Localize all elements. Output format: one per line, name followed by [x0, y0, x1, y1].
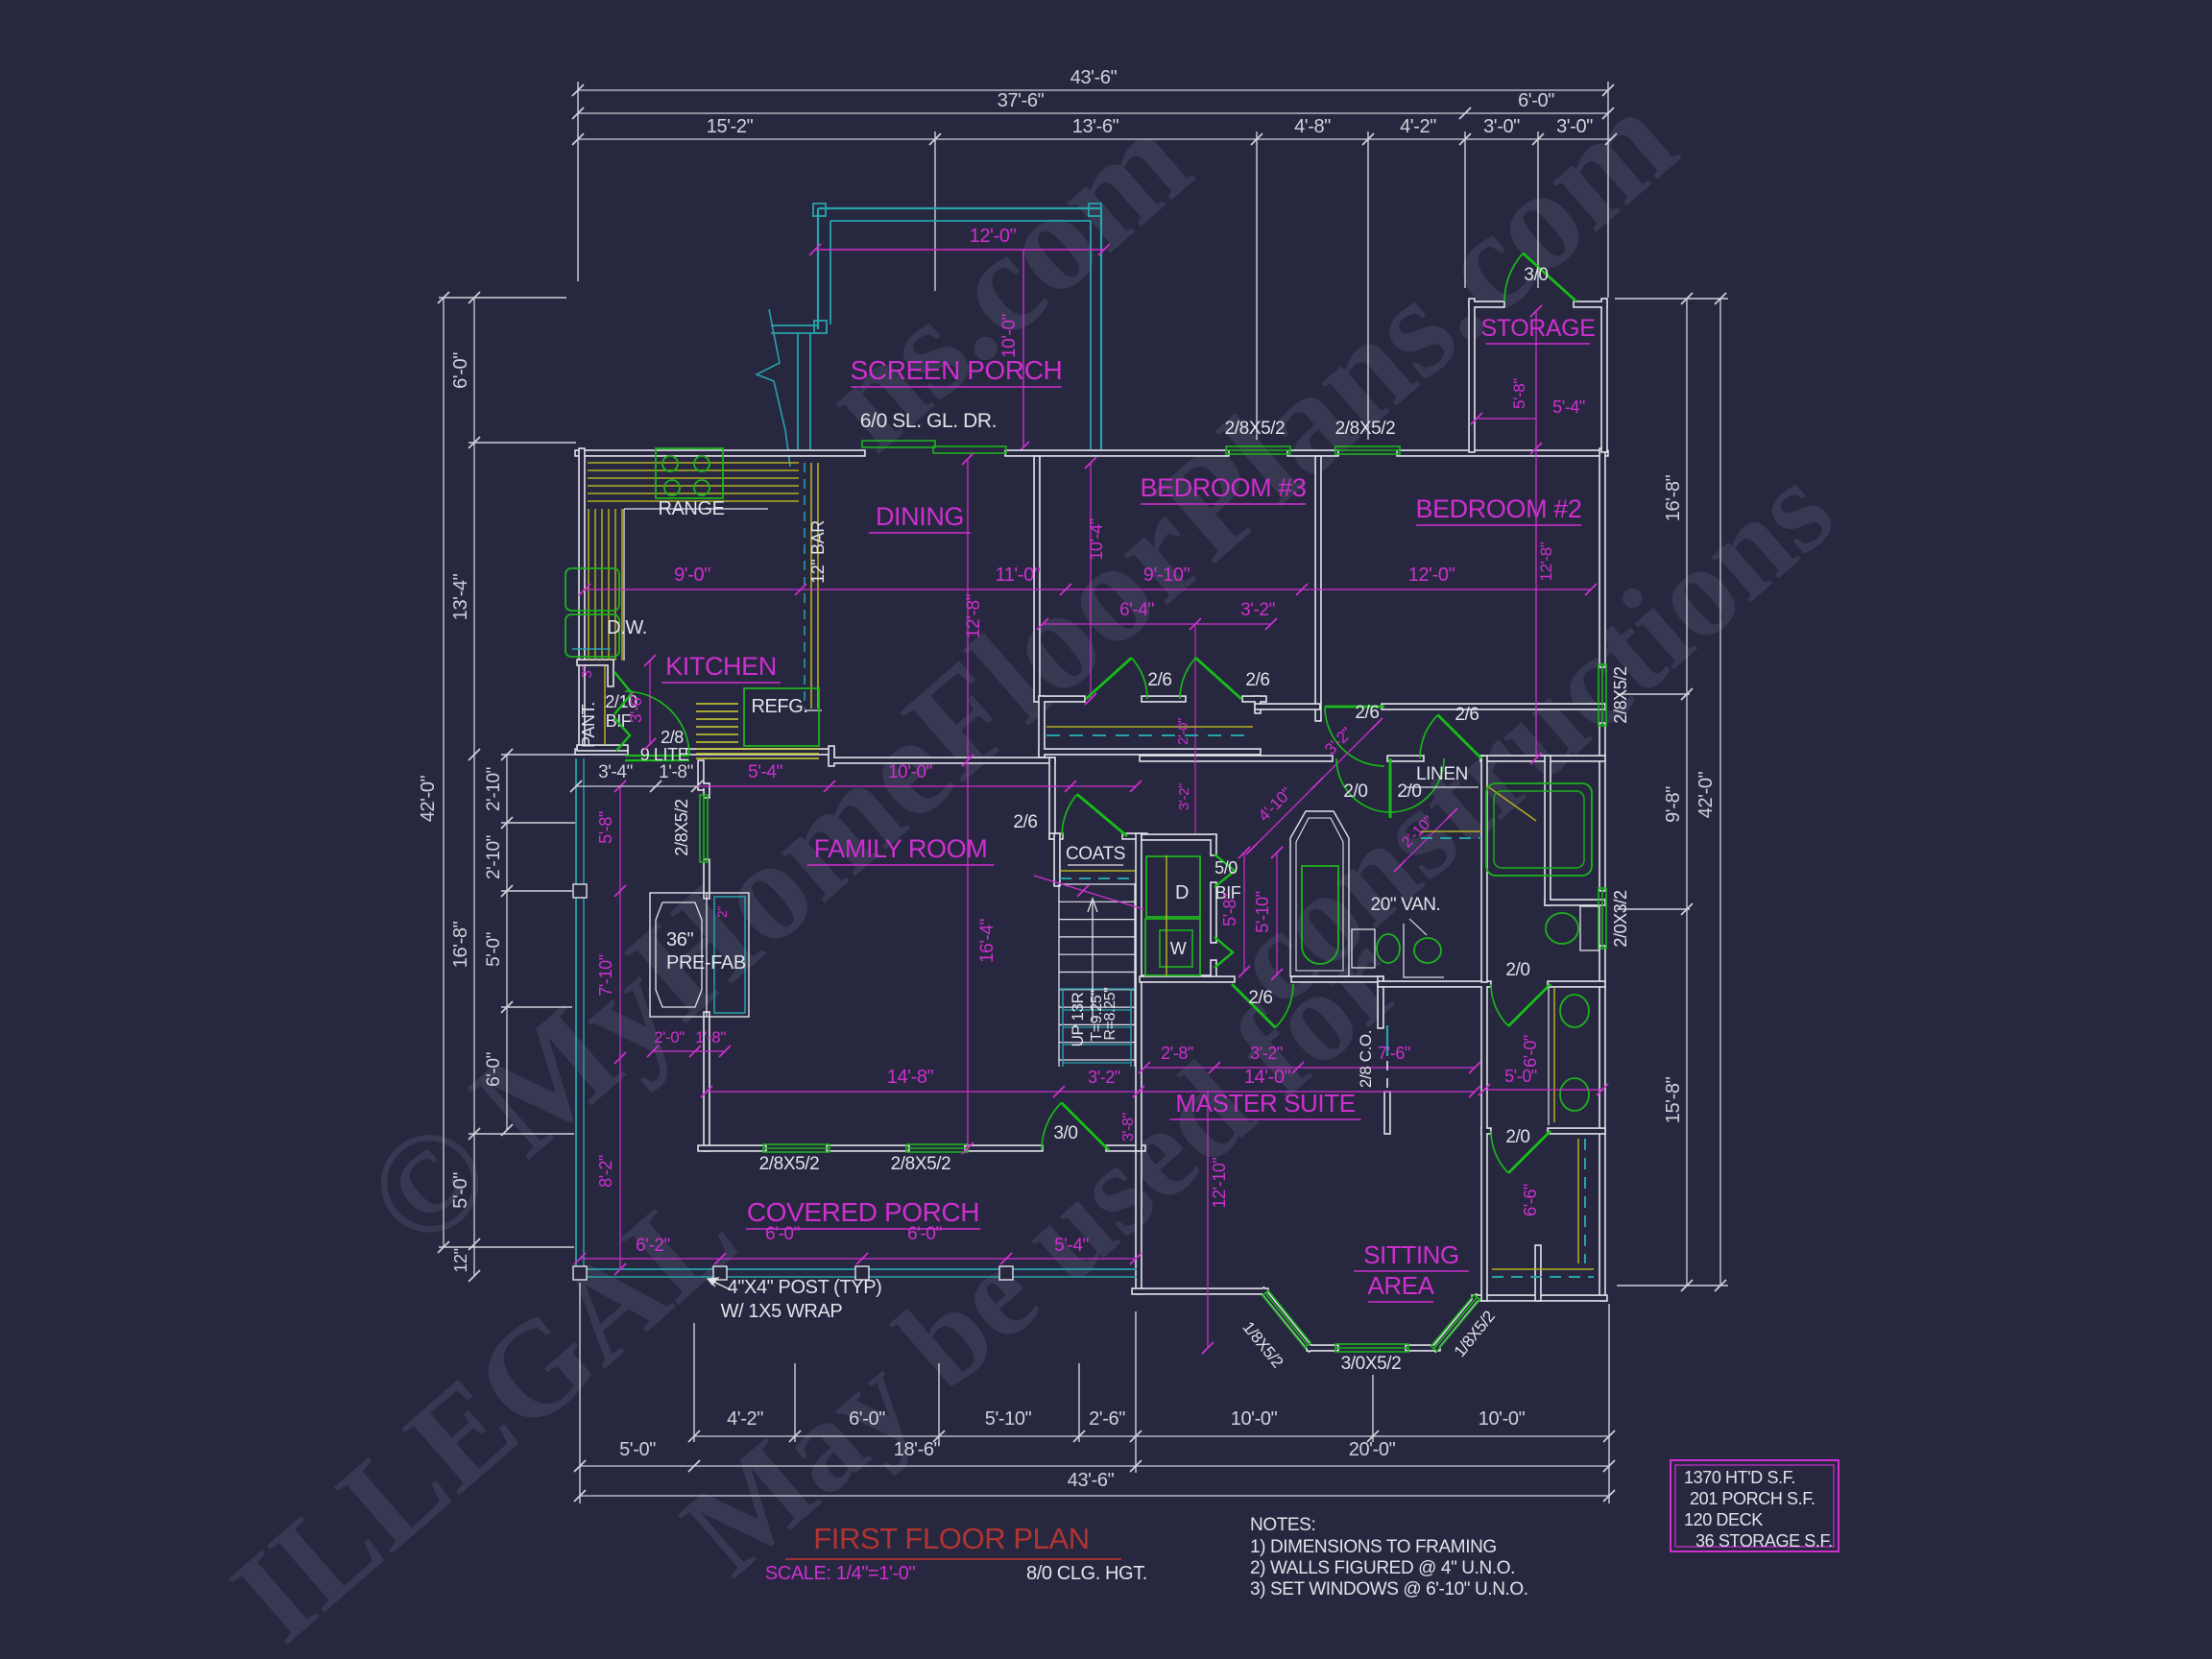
svg-text:2/8X5/2: 2/8X5/2: [891, 1154, 951, 1174]
svg-text:5'-8": 5'-8": [596, 811, 615, 844]
svg-text:14'-0": 14'-0": [1244, 1067, 1291, 1088]
svg-text:2/8X5/2: 2/8X5/2: [759, 1154, 820, 1174]
svg-text:6'-4": 6'-4": [1119, 600, 1154, 620]
svg-text:36 STORAGE S.F.: 36 STORAGE S.F.: [1695, 1531, 1833, 1551]
svg-text:5/0: 5/0: [1214, 858, 1238, 878]
svg-text:2'-0": 2'-0": [654, 1028, 685, 1046]
svg-text:5'-0": 5'-0": [1504, 1067, 1537, 1086]
svg-text:4'-8": 4'-8": [1294, 116, 1331, 137]
svg-text:2/0: 2/0: [1505, 1127, 1529, 1147]
svg-text:2/0: 2/0: [1343, 781, 1367, 802]
svg-text:3) SET WINDOWS @ 6'-10" U.N.O.: 3) SET WINDOWS @ 6'-10" U.N.O.: [1250, 1579, 1528, 1599]
svg-text:AREA: AREA: [1367, 1271, 1434, 1300]
svg-text:201 PORCH S.F.: 201 PORCH S.F.: [1690, 1489, 1815, 1508]
svg-text:SCREEN PORCH: SCREEN PORCH: [851, 355, 1063, 385]
svg-text:5'-10": 5'-10": [985, 1408, 1032, 1430]
svg-text:10'-0": 10'-0": [1231, 1408, 1278, 1430]
svg-text:1'-8": 1'-8": [695, 1028, 726, 1046]
svg-text:2'-10": 2'-10": [484, 835, 504, 879]
svg-text:2'-10": 2'-10": [484, 767, 504, 811]
svg-text:2/8: 2/8: [661, 728, 684, 747]
svg-text:42'-0": 42'-0": [1695, 771, 1717, 818]
svg-text:PANT.: PANT.: [579, 702, 598, 748]
svg-text:13'-6": 13'-6": [1072, 116, 1119, 137]
svg-text:UP 13R: UP 13R: [1069, 992, 1087, 1046]
svg-text:9'-8": 9'-8": [1663, 786, 1684, 823]
svg-text:2/6: 2/6: [1355, 703, 1379, 723]
svg-text:42'-0": 42'-0": [418, 775, 439, 822]
svg-text:NOTES:: NOTES:: [1250, 1515, 1315, 1535]
svg-text:5'-0": 5'-0": [619, 1439, 656, 1460]
svg-text:2/6: 2/6: [1245, 670, 1269, 690]
svg-text:6/0 SL. GL. DR.: 6/0 SL. GL. DR.: [860, 410, 997, 432]
svg-text:5'-10": 5'-10": [1253, 891, 1272, 932]
svg-text:6'-0": 6'-0": [849, 1408, 885, 1430]
svg-text:9 LITE: 9 LITE: [640, 745, 689, 764]
svg-text:15'-2": 15'-2": [707, 116, 754, 137]
svg-text:5'-8": 5'-8": [1510, 378, 1528, 409]
svg-text:7'-10": 7'-10": [596, 954, 615, 996]
svg-text:REFG.: REFG.: [751, 696, 807, 717]
svg-text:3'-4": 3'-4": [598, 762, 633, 782]
svg-text:2/8X5/2: 2/8X5/2: [672, 799, 691, 856]
svg-text:43'-6": 43'-6": [1068, 1470, 1115, 1491]
svg-text:2": 2": [714, 906, 730, 918]
svg-text:2/0: 2/0: [1397, 781, 1421, 802]
svg-text:12'-10": 12'-10": [1210, 1157, 1229, 1208]
svg-text:KITCHEN: KITCHEN: [665, 652, 777, 681]
svg-text:3/0: 3/0: [1524, 265, 1548, 285]
svg-text:D: D: [1175, 882, 1189, 903]
svg-text:36": 36": [666, 929, 693, 950]
svg-text:16'-8": 16'-8": [1663, 474, 1684, 521]
svg-text:3'-2": 3'-2": [1250, 1044, 1283, 1063]
svg-text:6'-0": 6'-0": [484, 1052, 504, 1087]
svg-text:6'-6": 6'-6": [1521, 1184, 1540, 1216]
svg-text:2/6: 2/6: [1147, 670, 1171, 690]
svg-text:12'-0": 12'-0": [970, 226, 1017, 247]
svg-text:20'-0": 20'-0": [1349, 1439, 1396, 1460]
svg-text:2'-6": 2'-6": [1089, 1408, 1125, 1430]
svg-text:SITTING: SITTING: [1363, 1240, 1459, 1269]
svg-text:6'-0": 6'-0": [1521, 1035, 1540, 1068]
svg-text:LINEN: LINEN: [1416, 764, 1468, 784]
svg-text:2/8 C.O.: 2/8 C.O.: [1357, 1030, 1375, 1088]
svg-text:1'-8": 1'-8": [659, 762, 693, 782]
svg-text:4'-2": 4'-2": [1400, 116, 1436, 137]
svg-text:4"X4" POST (TYP): 4"X4" POST (TYP): [728, 1277, 882, 1298]
svg-text:FAMILY ROOM: FAMILY ROOM: [814, 834, 988, 863]
svg-text:5'-8": 5'-8": [1220, 894, 1239, 926]
svg-text:5'-4": 5'-4": [1054, 1236, 1089, 1256]
svg-text:DINING: DINING: [876, 502, 964, 531]
svg-text:3": 3": [579, 665, 595, 678]
svg-text:2'-8": 2'-8": [1161, 1044, 1193, 1063]
svg-text:W/ 1X5 WRAP: W/ 1X5 WRAP: [721, 1301, 843, 1322]
svg-text:10'-0": 10'-0": [999, 314, 1020, 358]
svg-text:5'-0": 5'-0": [484, 932, 504, 967]
svg-text:3'-2": 3'-2": [1240, 600, 1275, 620]
svg-text:3/0: 3/0: [1053, 1123, 1077, 1143]
svg-text:8/0 CLG. HGT.: 8/0 CLG. HGT.: [1026, 1563, 1147, 1584]
svg-text:3'-2": 3'-2": [1088, 1068, 1120, 1087]
svg-text:2/8X5/2: 2/8X5/2: [1335, 419, 1396, 439]
svg-text:10'-0": 10'-0": [888, 762, 932, 782]
svg-text:12": 12": [451, 1248, 470, 1272]
svg-text:120 DECK: 120 DECK: [1684, 1510, 1763, 1529]
svg-text:16'-8": 16'-8": [450, 921, 471, 968]
svg-text:6'-0": 6'-0": [907, 1224, 942, 1244]
svg-text:6'-2": 6'-2": [636, 1236, 670, 1256]
svg-text:1) DIMENSIONS TO FRAMING: 1) DIMENSIONS TO FRAMING: [1250, 1537, 1497, 1557]
svg-text:10'-0": 10'-0": [1479, 1408, 1526, 1430]
svg-text:9'-10": 9'-10": [1143, 565, 1190, 586]
svg-text:W: W: [1170, 939, 1187, 958]
svg-text:11'-0": 11'-0": [995, 565, 1040, 586]
svg-text:BEDROOM #2: BEDROOM #2: [1415, 494, 1581, 523]
svg-text:2/0: 2/0: [1505, 960, 1529, 980]
svg-text:3'-8": 3'-8": [1120, 1113, 1137, 1142]
svg-text:18'-6": 18'-6": [894, 1439, 941, 1460]
svg-text:2/8X5/2: 2/8X5/2: [1225, 419, 1286, 439]
svg-text:1370 HT'D S.F.: 1370 HT'D S.F.: [1684, 1468, 1795, 1487]
svg-text:2'-0": 2'-0": [1175, 718, 1191, 745]
svg-text:8'-2": 8'-2": [596, 1155, 615, 1188]
svg-text:10'-4": 10'-4": [1087, 518, 1106, 560]
svg-text:RANGE: RANGE: [658, 498, 724, 519]
svg-text:16'-4": 16'-4": [977, 919, 998, 963]
svg-text:7'-6": 7'-6": [1378, 1044, 1410, 1063]
svg-text:12" BAR: 12" BAR: [808, 520, 828, 584]
svg-text:2/0X3/2: 2/0X3/2: [1611, 890, 1630, 948]
svg-text:20" VAN.: 20" VAN.: [1371, 895, 1441, 915]
svg-text:43'-6": 43'-6": [1070, 67, 1118, 88]
svg-text:MASTER SUITE: MASTER SUITE: [1175, 1089, 1355, 1118]
svg-text:3'-6": 3'-6": [627, 692, 645, 723]
svg-text:6'-0": 6'-0": [765, 1224, 800, 1244]
svg-text:37'-6": 37'-6": [998, 90, 1045, 111]
svg-text:5'-4": 5'-4": [748, 762, 782, 782]
svg-text:2/8X5/2: 2/8X5/2: [1611, 666, 1630, 724]
svg-text:BEDROOM #3: BEDROOM #3: [1140, 473, 1306, 502]
svg-text:14'-8": 14'-8": [887, 1067, 934, 1088]
svg-text:PRE-FAB: PRE-FAB: [666, 952, 746, 974]
svg-text:12'-8": 12'-8": [964, 594, 984, 638]
svg-text:2/6: 2/6: [1248, 988, 1272, 1008]
svg-text:6'-0": 6'-0": [450, 352, 471, 389]
svg-text:3'-0": 3'-0": [1556, 116, 1593, 137]
svg-text:5'-0": 5'-0": [450, 1172, 471, 1209]
svg-text:2) WALLS FIGURED @ 4" U.N.O.: 2) WALLS FIGURED @ 4" U.N.O.: [1250, 1558, 1515, 1578]
svg-text:COATS: COATS: [1066, 844, 1125, 864]
svg-text:3'-2": 3'-2": [1176, 783, 1192, 810]
svg-text:15'-8": 15'-8": [1663, 1076, 1684, 1123]
svg-text:2/6: 2/6: [1013, 812, 1037, 832]
svg-text:5'-4": 5'-4": [1552, 397, 1585, 417]
svg-text:13'-4": 13'-4": [450, 573, 471, 620]
svg-text:12'-0": 12'-0": [1408, 565, 1455, 586]
svg-text:3'-0": 3'-0": [1483, 116, 1520, 137]
svg-text:2/6: 2/6: [1455, 705, 1479, 725]
svg-text:3/0X5/2: 3/0X5/2: [1341, 1354, 1402, 1374]
svg-text:D.W.: D.W.: [607, 617, 647, 638]
svg-text:COVERED PORCH: COVERED PORCH: [747, 1197, 979, 1227]
svg-text:12'-8": 12'-8": [1537, 541, 1555, 581]
svg-text:6'-0": 6'-0": [1518, 90, 1554, 111]
svg-text:FIRST FLOOR PLAN: FIRST FLOOR PLAN: [813, 1522, 1090, 1555]
svg-text:SCALE: 1/4"=1'-0": SCALE: 1/4"=1'-0": [765, 1563, 916, 1584]
svg-text:R=8.25": R=8.25": [1102, 988, 1118, 1041]
svg-text:STORAGE: STORAGE: [1481, 315, 1596, 342]
svg-text:4'-2": 4'-2": [727, 1408, 763, 1430]
svg-text:9'-0": 9'-0": [674, 565, 710, 586]
